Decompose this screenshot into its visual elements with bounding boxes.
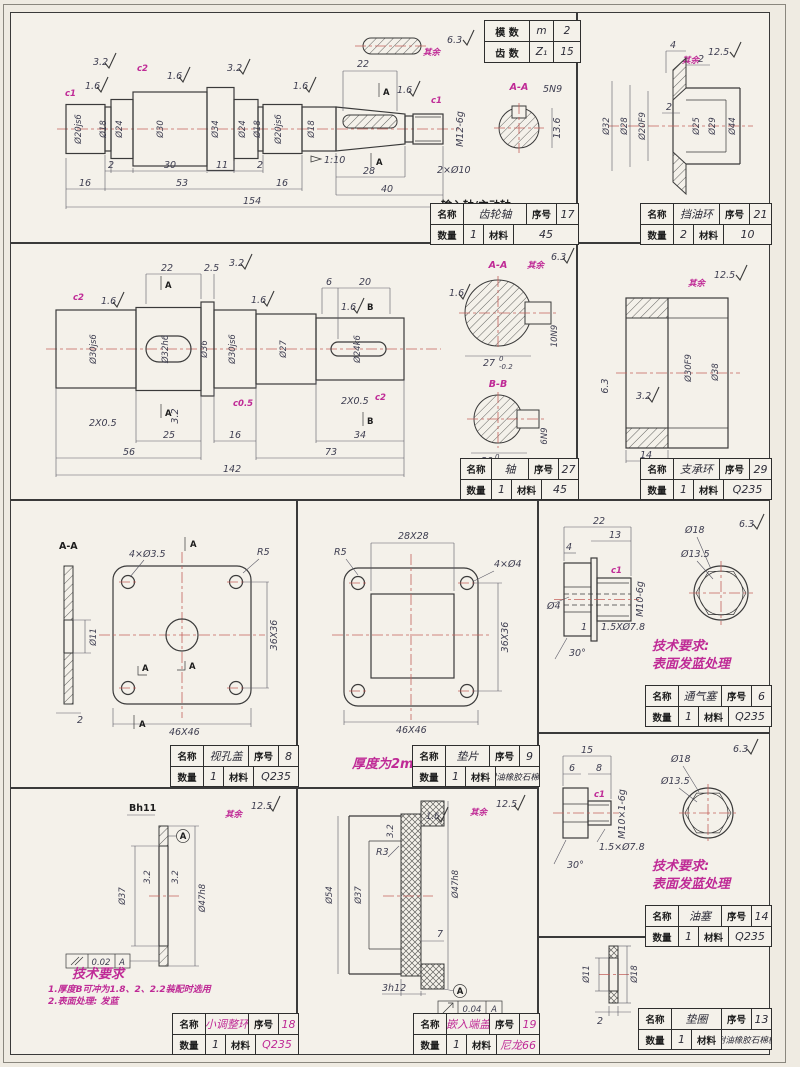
tb-qty-label: 数量 [461, 480, 491, 499]
dim-label: 25 [163, 430, 175, 441]
dim-label: 36X36 [500, 622, 511, 653]
tb-qty-label: 数量 [646, 927, 678, 946]
dia-label: Ø24k6 [352, 334, 363, 363]
title-block-breather: 名称通气塞序号6 数量1材料Q235 [645, 685, 772, 727]
part-seq: 14 [751, 906, 771, 926]
part-material: 45 [541, 480, 578, 499]
section-label: A-A [488, 260, 508, 271]
tech-title: 技术要求: [652, 858, 730, 876]
param-label: 模 数 [485, 21, 529, 41]
part-qty: 1 [671, 1030, 691, 1049]
thread-label: M12-6g [455, 111, 466, 147]
dim-label: 2 [597, 1016, 603, 1027]
dia-label: Ø11 [581, 965, 592, 984]
tb-qty-label: 数量 [646, 707, 678, 726]
ring-outline [149, 826, 179, 966]
section-mark: A [383, 88, 390, 98]
part-qty: 1 [203, 767, 223, 786]
tech-line: 2.表面处理: 发蓝 [48, 996, 288, 1008]
dim-label: 22 [161, 263, 173, 274]
radius-label: R5 [257, 547, 270, 558]
dia-label: Ø18 [629, 965, 640, 984]
dia-label: Ø27 [278, 340, 289, 359]
section-aa: A-A 1.6 10N9 27 0 -0.2 [449, 260, 560, 371]
tb-mat-label: 材料 [465, 767, 495, 786]
roughness-label: 3.2 [229, 258, 244, 269]
section-aa: A-A 5N9 13.6 [494, 82, 563, 153]
tech-line: 1.厚度B可冲为1.8、2、2.2装配时选用 [48, 984, 288, 996]
dia-label: Ø54 [324, 886, 335, 905]
center-holes-label: 2×Ø10 [437, 165, 471, 176]
dim-label: 73 [325, 447, 337, 458]
annotations: 4×Ø3.5 R5 36X36 46X46 A A A A [113, 537, 280, 738]
table-row: 齿 数 Z₁ 15 [485, 41, 580, 62]
dia-label: Ø18 [252, 120, 263, 139]
finish-qiyu: 其余 [470, 807, 489, 818]
dim-label: 6 [569, 763, 575, 774]
dia-label: Ø25 [691, 117, 702, 136]
dim-label: 46X46 [169, 727, 200, 738]
table-row: 模 数 m 2 [485, 21, 580, 41]
dim-label: 22 [357, 59, 369, 70]
dia-label: Ø32h6 [160, 334, 171, 364]
title-block-washer: 名称垫圈序号13 数量1材料耐油橡胶石棉板 [638, 1008, 772, 1050]
part-qty: 2 [673, 225, 693, 244]
chamfer-label: c2 [375, 393, 386, 403]
part-seq: 8 [278, 746, 298, 766]
part-seq: 13 [751, 1009, 771, 1029]
tb-seq-label: 序号 [528, 459, 558, 479]
dim-label: 4 [670, 40, 676, 51]
tb-mat-label: 材料 [693, 225, 723, 244]
section-mark: B [367, 417, 373, 427]
part-seq: 27 [558, 459, 578, 479]
dim-label: 28 [363, 166, 375, 177]
dim-label: 2 [108, 160, 114, 171]
dim-label: 13 [609, 530, 621, 541]
finish-value: 6.3 [739, 519, 754, 530]
annotations: 15 6 8 M10×1-6g c1 1.5×Ø7.8 30° [563, 745, 645, 871]
part-name: 通气塞 [678, 686, 721, 706]
title-block-oil-ring: 名称挡油环序号21 数量2材料10 [640, 203, 772, 245]
gear-parameter-table: 模 数 m 2 齿 数 Z₁ 15 [484, 20, 581, 63]
dim-label: 40 [381, 184, 393, 195]
diameter-labels: Ø20js6 Ø18 Ø24 Ø30 Ø34 Ø24 Ø18 Ø20js6 Ø1… [73, 114, 317, 145]
angle-label: 30° [569, 648, 586, 659]
finish-qiyu: 其余 [423, 47, 442, 58]
param-symbol: Z₁ [529, 42, 553, 62]
part-name: 油塞 [678, 906, 721, 926]
keyway-label: 10N9 [550, 325, 560, 348]
tb-mat-label: 材料 [466, 1035, 496, 1054]
tech-title: 技术要求 [72, 966, 288, 984]
part-qty: 1 [673, 480, 693, 499]
dia-label: Ø29 [707, 117, 718, 136]
dia-label: Ø18 [684, 525, 705, 536]
finish-value: 12.5 [496, 799, 517, 810]
param-value: 2 [553, 21, 580, 41]
thread-label: M10×1-6g [617, 789, 628, 839]
dia-label: Ø18 [306, 120, 317, 139]
title-block-cover: 名称视孔盖序号8 数量1材料Q235 [170, 745, 299, 787]
pin-detail [355, 38, 429, 54]
roughness-label: 3.2 [386, 824, 396, 838]
roughness-check-icon [736, 265, 747, 280]
plug-side-view [554, 558, 639, 659]
chamfer-label: c0.5 [233, 399, 253, 409]
tb-qty-label: 数量 [639, 1030, 671, 1049]
dim-label: 8 [596, 763, 602, 774]
tb-qty-label: 数量 [171, 767, 203, 786]
roughness-check-icon [463, 30, 474, 45]
title-block-oil-plug: 名称油塞序号14 数量1材料Q235 [645, 905, 772, 947]
tb-qty-label: 数量 [641, 480, 673, 499]
tb-mat-label: 材料 [225, 1035, 255, 1054]
part-name: 挡油环 [673, 204, 719, 224]
title-block-gear-shaft: 名称齿轮轴序号17 数量1材料45 [430, 203, 579, 245]
dim-label: 16 [79, 178, 91, 189]
tb-name-label: 名称 [646, 906, 678, 926]
tb-name-label: 名称 [461, 459, 491, 479]
dia-label: Ø37 [353, 886, 364, 905]
end-view: Ø18 Ø13.5 [680, 525, 753, 625]
cover-drawing: A-A Ø11 2 4×Ø3.5 R5 36X36 46X46 A [11, 501, 295, 786]
part-qty: 1 [445, 767, 465, 786]
dim-label: 16 [229, 430, 241, 441]
part-qty: 1 [678, 707, 698, 726]
end-view: Ø18 Ø13.5 [660, 754, 737, 842]
tb-seq-label: 序号 [719, 459, 749, 479]
tb-mat-label: 材料 [691, 1030, 721, 1049]
dia-label: Ø44 [727, 117, 738, 136]
tb-seq-label: 序号 [489, 746, 519, 766]
taper-label: 1:10 [324, 155, 345, 166]
tb-mat-label: 材料 [698, 927, 728, 946]
breather-tech-note: 技术要求: 表面发蓝处理 [652, 638, 730, 673]
holes-label: 4×Ø3.5 [129, 549, 166, 560]
roughness-label: 3.2 [171, 870, 181, 884]
dim-label: 154 [243, 196, 261, 207]
part-material: 耐油橡胶石棉板 [495, 767, 539, 786]
tb-qty-label: 数量 [413, 767, 445, 786]
finish-value: 12.5 [708, 47, 729, 58]
ring-outline [616, 298, 740, 448]
section-mark: A [165, 409, 172, 419]
dim-label: 2.5 [204, 263, 219, 274]
dia-label: Ø18 [670, 754, 691, 765]
dia-label: Ø24 [114, 120, 125, 139]
dia-label: Ø34 [210, 120, 221, 139]
dia-label: Ø13.5 [660, 776, 690, 787]
dim-label: 34 [354, 430, 366, 441]
section-mark: A [165, 281, 172, 291]
tb-seq-label: 序号 [526, 204, 556, 224]
dim-label: 28X28 [398, 531, 429, 542]
dia-label: Ø30js6 [88, 334, 99, 365]
roughness-label: 1.6 [167, 71, 182, 82]
part-material: 耐油橡胶石棉板 [721, 1030, 771, 1049]
tb-mat-label: 材料 [223, 767, 253, 786]
tb-mat-label: 材料 [483, 225, 513, 244]
tb-name-label: 名称 [431, 204, 463, 224]
tech-title: 技术要求: [652, 638, 730, 656]
finish-qiyu: 其余 [527, 260, 546, 271]
tb-name-label: 名称 [641, 459, 673, 479]
datum-label: A [457, 987, 464, 997]
roughness-check-icon [730, 42, 741, 57]
finish-value: 6.3 [551, 252, 566, 263]
section-mark: A [189, 662, 196, 672]
dia-label: Ø47h8 [450, 869, 461, 899]
part-name: 齿轮轴 [463, 204, 526, 224]
keyway-label: 5N9 [543, 84, 562, 95]
chamfer-label: c2 [137, 64, 148, 74]
roughness-label: 6.3 [600, 378, 611, 393]
dim-label: 2 [666, 102, 672, 113]
annotations: 28X28 R5 4×Ø4 36X36 46X46 [334, 531, 522, 736]
roughness-label: 1.6 [397, 85, 412, 96]
section-label: A-A [59, 541, 78, 552]
tol-lower: -0.2 [499, 363, 513, 371]
section-bb: B-B 6N9 20 0 -0.1 [467, 379, 550, 469]
param-label: 齿 数 [485, 42, 529, 62]
part-material: 尼龙66 [496, 1035, 539, 1054]
title-block-end-cap: 名称嵌入端盖序号19 数量1材料尼龙66 [413, 1013, 540, 1055]
gasket-drawing: 28X28 R5 4×Ø4 36X36 46X46 [298, 501, 536, 786]
finish-qiyu: 其余 [225, 809, 244, 820]
dim-label: 22 [593, 516, 605, 527]
title-block-output-shaft: 名称轴序号27 数量1材料45 [460, 458, 579, 500]
angle-label: 30° [567, 860, 584, 871]
part-name: 轴 [491, 459, 528, 479]
finish-qiyu: 其余 [688, 278, 707, 289]
top-dimensions: 22 2.5 6 20 [146, 263, 390, 339]
dia-label: Ø47h8 [197, 883, 208, 913]
dia-label: Ø30 [155, 120, 166, 139]
section-label: A-A [509, 82, 529, 93]
roughness-label: 1.6 [341, 302, 356, 313]
dimensions: 4 2 2 Ø32 Ø28 Ø20F9 Ø25 Ø29 Ø44 [601, 40, 738, 171]
roughness-label: 1.6 [251, 295, 266, 306]
chamfer-dim: 2X0.5 [89, 418, 117, 429]
oil-plug-tech-note: 技术要求: 表面发蓝处理 [652, 858, 730, 893]
finish-value: 6.3 [447, 35, 462, 46]
dia-label: Ø30js6 [227, 334, 238, 365]
dim-label: 56 [123, 447, 135, 458]
dim-label: 1 [581, 622, 587, 633]
tb-qty-label: 数量 [173, 1035, 205, 1054]
dim-label: 2 [698, 54, 704, 65]
chamfer-label: c1 [431, 96, 442, 106]
tb-name-label: 名称 [414, 1014, 446, 1034]
runout-frame: 0.04 A A [438, 985, 502, 1016]
part-qty: 1 [491, 480, 511, 499]
title-block-adj-ring: 名称小调整环序号18 数量1材料Q235 [172, 1013, 299, 1055]
part-qty: 1 [446, 1035, 466, 1054]
part-seq: 17 [556, 204, 578, 224]
tb-name-label: 名称 [173, 1014, 205, 1034]
title-block-gasket: 名称垫片序号9 数量1材料耐油橡胶石棉板 [412, 745, 540, 787]
part-qty: 1 [463, 225, 483, 244]
tb-seq-label: 序号 [248, 1014, 278, 1034]
part-name: 垫片 [445, 746, 489, 766]
dim-label: 6 [326, 277, 332, 288]
holes-label: 4×Ø4 [494, 559, 522, 570]
part-material: 45 [513, 225, 578, 244]
title-block-support-ring: 名称支承环序号29 数量1材料Q235 [640, 458, 772, 500]
tech-line: 表面发蓝处理 [652, 656, 730, 674]
adj-ring-tech-note: 技术要求 1.厚度B可冲为1.8、2、2.2装配时选用 2.表面处理: 发蓝 [48, 966, 288, 1008]
roughness-label: 1.6 [426, 812, 440, 822]
chamfer-dim: 1.5XØ7.8 [601, 622, 645, 633]
taper-icon [311, 156, 321, 162]
washer-outline [599, 946, 629, 1003]
roughness-label: 1.6 [101, 296, 116, 307]
dim-label: 142 [223, 464, 241, 475]
tb-mat-label: 材料 [693, 480, 723, 499]
keyway-label: 6N9 [540, 427, 550, 444]
chamfer-dim: 1.5×Ø7.8 [599, 842, 645, 853]
finish-value: 6.3 [733, 744, 748, 755]
tech-line: 表面发蓝处理 [652, 876, 730, 894]
chamfer-label: c1 [611, 566, 622, 576]
tb-mat-label: 材料 [698, 707, 728, 726]
param-symbol: m [529, 21, 553, 41]
roughness-label: 1.6 [293, 81, 308, 92]
dim-label: 13.6 [552, 117, 563, 138]
roughness-label: 3.2 [227, 63, 242, 74]
part-material: Q235 [728, 927, 771, 946]
dia-label: Ø4 [546, 601, 561, 612]
section-label: B-B [489, 379, 507, 390]
dim-label: 11 [216, 160, 228, 171]
tb-name-label: 名称 [413, 746, 445, 766]
section-mark: B [367, 303, 373, 313]
length-dimensions: 2 30 11 2 16 53 16 154 28 40 [66, 146, 443, 209]
dim-label: 2 [257, 160, 263, 171]
radius-label: R5 [334, 547, 347, 558]
part-seq: 18 [278, 1014, 298, 1034]
front-view [99, 552, 265, 718]
section-mark: A [142, 664, 149, 674]
tb-qty-label: 数量 [431, 225, 463, 244]
dia-label: Ø38 [710, 363, 721, 382]
tol-upper: 0 [499, 355, 504, 363]
roughness-check-icon [747, 739, 758, 754]
roughness-label: 3.2 [636, 391, 651, 402]
dia-label: Ø11 [88, 628, 99, 647]
tb-name-label: 名称 [646, 686, 678, 706]
part-qty: 1 [678, 927, 698, 946]
part-name: 小调整环 [205, 1014, 248, 1034]
thread-label: M10-6g [635, 581, 646, 617]
dim-label: 2 [77, 715, 83, 726]
part-qty: 1 [205, 1035, 225, 1054]
dia-label: Ø20js6 [273, 114, 284, 145]
dim-label: 53 [176, 178, 188, 189]
part-seq: 6 [751, 686, 771, 706]
dia-label: Ø20js6 [73, 114, 84, 145]
tb-qty-label: 数量 [641, 225, 673, 244]
part-seq: 9 [519, 746, 539, 766]
chamfer-dim: 2X0.5 [341, 396, 369, 407]
finish-value: 12.5 [714, 270, 735, 281]
dim-label: 7 [437, 929, 443, 940]
part-material: Q235 [255, 1035, 298, 1054]
dim-label: 36X36 [269, 620, 280, 651]
part-seq: 21 [749, 204, 771, 224]
dia-label: Ø28 [619, 117, 630, 136]
param-value: 15 [553, 42, 580, 62]
dia-label: Ø20F9 [637, 112, 648, 141]
part-name: 视孔盖 [203, 746, 248, 766]
part-material: Q235 [728, 707, 771, 726]
dia-label: Ø30F9 [683, 354, 694, 383]
part-seq: 19 [519, 1014, 539, 1034]
roughness-label: 3.2 [170, 408, 181, 423]
tb-seq-label: 序号 [248, 746, 278, 766]
tb-mat-label: 材料 [511, 480, 541, 499]
roughness-label: 3.2 [143, 870, 153, 884]
roughness-check-icon [753, 514, 764, 529]
chamfer-label: c1 [65, 89, 76, 99]
tb-seq-label: 序号 [721, 686, 751, 706]
section-mark: A [139, 720, 146, 730]
tb-name-label: 名称 [639, 1009, 671, 1029]
dim-label: 16 [276, 178, 288, 189]
side-view: Ø11 2 [56, 566, 99, 726]
tb-qty-label: 数量 [414, 1035, 446, 1054]
gasket-outline [332, 554, 490, 720]
tb-name-label: 名称 [171, 746, 203, 766]
dia-label: Ø37 [117, 887, 128, 906]
part-seq: 29 [749, 459, 771, 479]
dim-label: 20 [359, 277, 371, 288]
dia-label: Ø32 [601, 117, 612, 136]
shaft-outline [46, 302, 441, 396]
dim-label: 30 [164, 160, 176, 171]
part-material: Q235 [253, 767, 298, 786]
dim-label: 27 [483, 358, 495, 369]
surface-marks: c1 1.6 3.2 c2 1.6 3.2 1.6 1.6 c1 [65, 53, 442, 106]
dia-label: Ø18 [98, 120, 109, 139]
dim-label: 3h12 [382, 983, 406, 994]
chamfer-label: c1 [594, 790, 605, 800]
dim-label: 4 [566, 542, 572, 553]
drawing-sheet: 其余 6.3 c1 1.6 3.2 c2 1.6 3.2 1.6 1.6 c1 [0, 0, 800, 1067]
dia-label: Ø24 [237, 120, 248, 139]
tb-seq-label: 序号 [489, 1014, 519, 1034]
dim-label: 46X46 [396, 725, 427, 736]
part-material: Q235 [723, 480, 771, 499]
part-name: 嵌入端盖 [446, 1014, 489, 1034]
tb-seq-label: 序号 [721, 906, 751, 926]
tb-seq-label: 序号 [721, 1009, 751, 1029]
radius-label: R3 [376, 847, 389, 858]
roughness-label: 1.6 [85, 81, 100, 92]
part-name: 垫圈 [671, 1009, 721, 1029]
dia-label: Ø13.5 [680, 549, 710, 560]
tb-name-label: 名称 [641, 204, 673, 224]
dim-label: 15 [581, 745, 593, 756]
section-mark: A [376, 158, 383, 168]
thickness-label: Bh11 [129, 803, 156, 814]
tb-seq-label: 序号 [719, 204, 749, 224]
chamfer-label: c2 [73, 293, 84, 303]
dia-label: Ø36 [199, 340, 210, 359]
datum-label: A [180, 832, 187, 842]
roughness-label: 3.2 [93, 57, 108, 68]
